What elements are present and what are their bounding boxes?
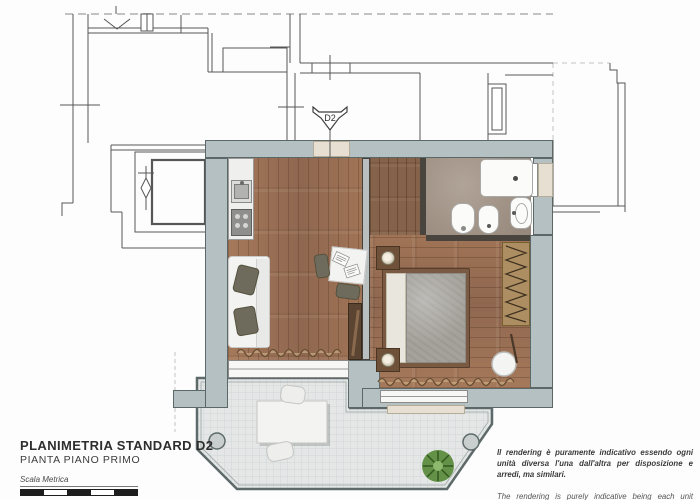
- bed-mattress: [406, 273, 466, 363]
- plan-subtitle: PIANTA PIANO PRIMO: [20, 454, 240, 466]
- wardrobe: [502, 242, 530, 326]
- bidet: [478, 205, 499, 234]
- entrance-door: [313, 141, 350, 157]
- wall-stub-left: [173, 390, 206, 408]
- plant-icon: [422, 450, 454, 482]
- scale-bar-segments: [20, 489, 138, 496]
- floor-plan-sheet: D2 PLANIMETRIA STANDARD D2 PIANTA PIANO …: [0, 0, 700, 500]
- disclaimer-block: Il rendering è puramente indicativo esse…: [497, 448, 693, 500]
- door-swing-arrow-icon: [104, 6, 130, 29]
- dining-table: [328, 246, 367, 285]
- toilet: [451, 203, 475, 234]
- kitchen-sink-icon: [231, 180, 252, 203]
- floor-drain-icon: [463, 434, 479, 450]
- scale-bar-ticks: 0 0,5 1 1,5 2 2,5: [20, 496, 138, 500]
- wall-top: [205, 140, 553, 158]
- console: [348, 303, 362, 360]
- bathroom-window-sill: [538, 163, 553, 197]
- wall-left: [205, 158, 228, 408]
- hall-bathroom-partition: [420, 158, 426, 235]
- cooktop-icon: [231, 209, 252, 236]
- bathroom-bedroom-partition: [426, 235, 531, 241]
- outdoor-table: [257, 401, 327, 443]
- disclaimer-english: The rendering is purely indicative being…: [497, 492, 693, 500]
- washbasin: [510, 197, 532, 229]
- disclaimer-italian: Il rendering è puramente indicativo esse…: [497, 448, 693, 481]
- shower-tray: [480, 159, 533, 197]
- bedroom-window: [380, 390, 468, 403]
- scale-bar: 0 0,5 1 1,5 2 2,5: [20, 486, 138, 494]
- nightstand: [376, 246, 400, 270]
- scale-label: Scala Metrica: [20, 475, 240, 484]
- dining-chair: [335, 282, 361, 300]
- title-block: PLANIMETRIA STANDARD D2 PIANTA PIANO PRI…: [20, 438, 240, 494]
- sofa: [228, 256, 270, 348]
- plan-title: PLANIMETRIA STANDARD D2: [20, 438, 240, 453]
- nightstand: [376, 348, 400, 372]
- bedside-lamp-icon: [381, 353, 395, 367]
- bedroom-balconette: [387, 405, 465, 414]
- entry-hall-floor: [370, 158, 420, 235]
- bedside-lamp-icon: [381, 251, 395, 265]
- stairwell: [111, 145, 210, 248]
- outdoor-chair: [280, 384, 306, 404]
- wall-right-bedroom: [530, 235, 553, 388]
- living-sliding-window: [228, 360, 349, 378]
